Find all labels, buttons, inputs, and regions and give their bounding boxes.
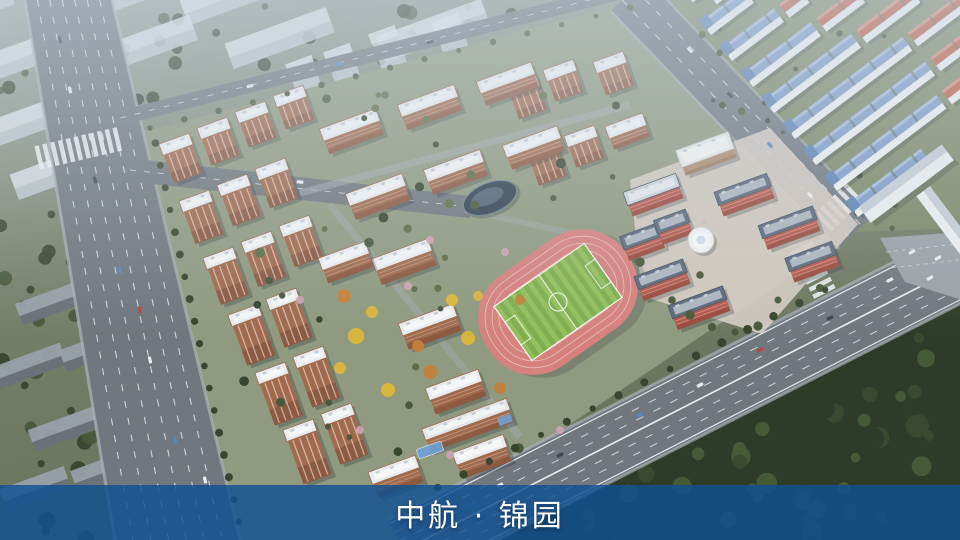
project-title: 中航 · 锦园 bbox=[395, 491, 565, 535]
masterplan-render bbox=[0, 0, 960, 540]
presentation-slide: 中航 · 锦园 bbox=[0, 0, 960, 540]
project-title-banner: 中航 · 锦园 bbox=[0, 485, 960, 540]
haze-overlay bbox=[0, 0, 960, 540]
aerial-render bbox=[0, 0, 960, 540]
